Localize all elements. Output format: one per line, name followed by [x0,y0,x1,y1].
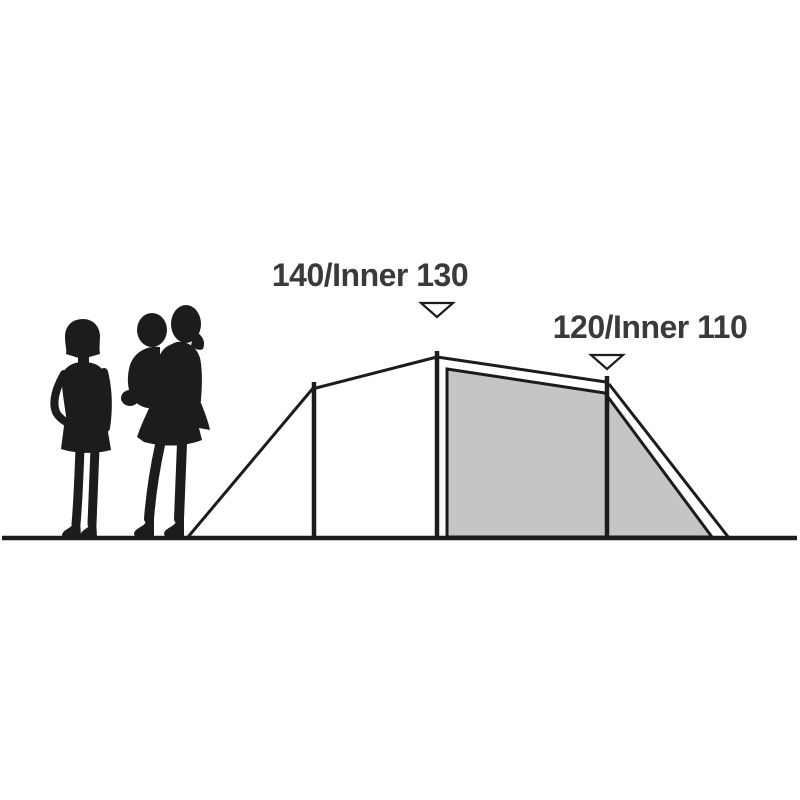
down-arrow-icon [591,355,623,369]
roof-line-left [312,357,437,389]
woman-skirt [61,418,111,453]
rear-height-label: 120/Inner 110 [553,309,748,345]
tent-height-diagram: 140/Inner 130 120/Inner 110 [0,0,800,800]
woman-right-arm [104,372,108,428]
front-guy-line [188,387,314,537]
mother-right-leg [179,443,182,519]
woman-left-foot [62,518,81,537]
inner-tent-panel [447,369,712,537]
main-height-label: 140/Inner 130 [272,257,468,293]
child-leg [121,390,139,406]
adult-woman-silhouette [54,319,111,537]
mother-right-foot [164,513,184,536]
woman-right-leg [92,448,95,524]
down-arrow-icon [421,303,453,317]
mother-left-leg [149,445,160,519]
mother-left-foot [134,513,154,536]
woman-left-leg [76,448,80,524]
diagram-canvas: 140/Inner 130 120/Inner 110 [0,0,800,800]
mother-skirt [137,403,210,446]
child-head [137,313,167,347]
woman-carrying-child-silhouette [121,305,210,536]
